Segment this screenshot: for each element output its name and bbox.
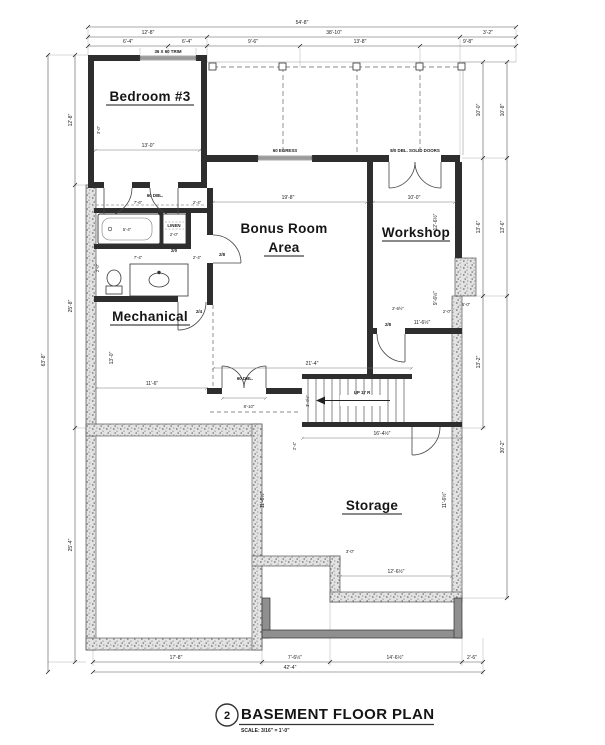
sink: [149, 273, 169, 287]
interior-dim-lines: [94, 149, 463, 578]
dim-top-r3e: 9'-8": [463, 39, 473, 45]
dim-ws-a: 12'-6½": [432, 213, 439, 230]
dimension-labels-top: 54'-8" 12'-8" 38'-10" 3'-2" 6'-4" 6'-4" …: [123, 20, 493, 45]
dim-hall-w: 7'-6": [134, 200, 143, 205]
dim-top-r3c: 9'-6": [248, 39, 258, 45]
extension-lines: [48, 29, 516, 675]
dim-stairs-bottom: 16'-4½": [374, 430, 391, 437]
toilet-bowl: [107, 270, 121, 286]
dim-storage-l: 11'-6½": [259, 492, 266, 509]
workshop-lower-door: [377, 334, 405, 362]
dim-top-r3d: 13'-8": [354, 39, 367, 45]
patio-walls: [262, 598, 462, 638]
dim-workshop-w: 10'-0": [408, 195, 421, 201]
dim-bottom-c: 14'-6½": [387, 654, 404, 661]
unfinished-room-inner-face: [96, 436, 252, 638]
dim-stairs-v: 2'-4": [292, 441, 297, 450]
dim-left-c: 25'-4": [68, 538, 74, 551]
dimension-labels-left: 63'-8" 12'-8" 25'-8" 25'-4": [41, 113, 74, 551]
room-label-bonus-2: Area: [268, 240, 299, 255]
dim-bedroom-h: 3'-0": [96, 125, 101, 134]
dim-bath-w: 7'-4": [134, 255, 143, 260]
deck-overhead: [207, 62, 516, 412]
detail-number: 2: [224, 710, 230, 722]
dimension-chain-left: [46, 53, 77, 674]
drawing-scale: SCALE: 3/16" = 1'-0": [241, 728, 290, 734]
dim-mech-w: 11'-6": [146, 381, 159, 387]
dim-dbl-w: 8'-10": [244, 404, 255, 409]
dim-right-ib: 13'-6": [476, 220, 482, 233]
note-egress: 60 EGRESS: [273, 148, 297, 153]
workshop-double-door-right: [415, 162, 441, 188]
toilet-tank: [106, 286, 122, 294]
room-label-workshop: Workshop: [382, 225, 450, 240]
dim-right-ic: 13'-2": [476, 355, 482, 368]
note-door-2-8: 2/8: [219, 252, 226, 257]
dim-top-overall: 54'-8": [296, 20, 309, 26]
dim-left-b: 25'-8": [68, 299, 74, 312]
dim-top-r2c: 3'-2": [483, 30, 493, 36]
dim-storage-b: 12'-6½": [388, 568, 405, 575]
dim-top-r2a: 12'-8": [142, 30, 155, 36]
dim-stairs-top: 21'-4": [306, 361, 319, 367]
dim-notch-b: 6'-0": [462, 302, 471, 307]
overhead-beam-dashed: [210, 305, 300, 412]
dim-stairs-h: 3'-4½": [305, 395, 310, 407]
dim-left-a: 12'-8": [68, 113, 74, 126]
dimension-chain-right: [481, 60, 509, 600]
note-solid-doors: 8/0 DBL. SOLID DOORS: [390, 148, 440, 153]
windows: [140, 56, 312, 160]
note-dbl-bonus: 60 DBL.: [237, 376, 253, 381]
dim-ws-b: 9'-6½": [432, 291, 439, 305]
dim-left-overall: 63'-8": [41, 353, 47, 366]
dimension-chain-top: [86, 25, 518, 48]
stairs: UP 17 R: [308, 379, 404, 422]
dim-ws-e: 2'-6½": [392, 306, 404, 311]
dim-top-r3a: 6'-4": [123, 39, 133, 45]
note-window-trim: 36 X 60 TRIM: [154, 49, 181, 54]
dim-hall-a: 2'-4": [193, 200, 202, 205]
note-linen: LINEN: [167, 223, 180, 228]
dim-bottom-b: 7'-6½": [288, 654, 302, 661]
workshop-double-door-left: [389, 162, 415, 188]
dim-right-oa: 10'-8": [500, 103, 506, 116]
dim-notch-a: 3'-0": [346, 549, 355, 554]
dim-bedroom-w: 13'-0": [142, 143, 155, 149]
dim-right-ia: 10'-0": [476, 103, 482, 116]
dim-right-oc: 30'-2": [500, 440, 506, 453]
room-label-bedroom3: Bedroom #3: [109, 89, 190, 104]
floor-plan-drawing: 54'-8" 12'-8" 38'-10" 3'-2" 6'-4" 6'-4" …: [0, 0, 605, 745]
dimension-labels-bottom: 17'-8" 7'-6½" 14'-6½" 2'-6" 42'-4": [170, 654, 478, 671]
note-door-2-0: 2/0: [171, 248, 178, 253]
room-label-mechanical: Mechanical: [112, 309, 188, 324]
dim-bath-a: 2'-4": [193, 255, 202, 260]
dim-bottom-a: 17'-8": [170, 655, 183, 661]
dim-bottom-overall: 42'-4": [284, 665, 297, 671]
dimension-labels-right: 10'-0" 13'-6" 13'-2" 10'-8" 13'-6" 30'-2…: [476, 103, 506, 453]
note-door-2-8b: 2/8: [385, 322, 392, 327]
dim-ws-c: 11'-6½": [414, 319, 431, 326]
dim-linen-w: 2'-0": [170, 232, 179, 237]
note-door-2-4: 2/4: [196, 309, 203, 314]
dim-tub: 5'-4": [123, 227, 132, 232]
title-block: 2 BASEMENT FLOOR PLAN SCALE: 3/16" = 1'-…: [216, 704, 434, 734]
dim-bath-h: 2'-0": [95, 263, 100, 272]
dim-mech-h: 13'-0": [109, 351, 115, 364]
dim-storage-r: 11'-6½": [441, 492, 448, 509]
dim-ws-d: 2'-0": [443, 309, 452, 314]
stairs-up-label: UP 17 R: [354, 390, 371, 395]
deck-posts: [209, 63, 465, 70]
stairs-direction-arrow: [316, 397, 325, 405]
dim-top-r3b: 6'-4": [182, 39, 192, 45]
dim-right-ob: 13'-6": [500, 220, 506, 233]
dim-top-r2b: 38'-10": [326, 30, 342, 36]
stairs-entry-arc: [412, 427, 440, 455]
room-label-bonus-1: Bonus Room: [241, 221, 328, 236]
note-dbl-hall: 60 DBL.: [147, 193, 163, 198]
dim-bonus-w: 19'-8": [282, 195, 295, 201]
room-label-storage: Storage: [346, 498, 399, 513]
dim-bottom-d: 2'-6": [467, 655, 477, 661]
bonus-room-door: [213, 235, 241, 263]
drawing-title: BASEMENT FLOOR PLAN: [241, 706, 434, 723]
basement-floor-plan-sheet: 54'-8" 12'-8" 38'-10" 3'-2" 6'-4" 6'-4" …: [0, 0, 605, 745]
